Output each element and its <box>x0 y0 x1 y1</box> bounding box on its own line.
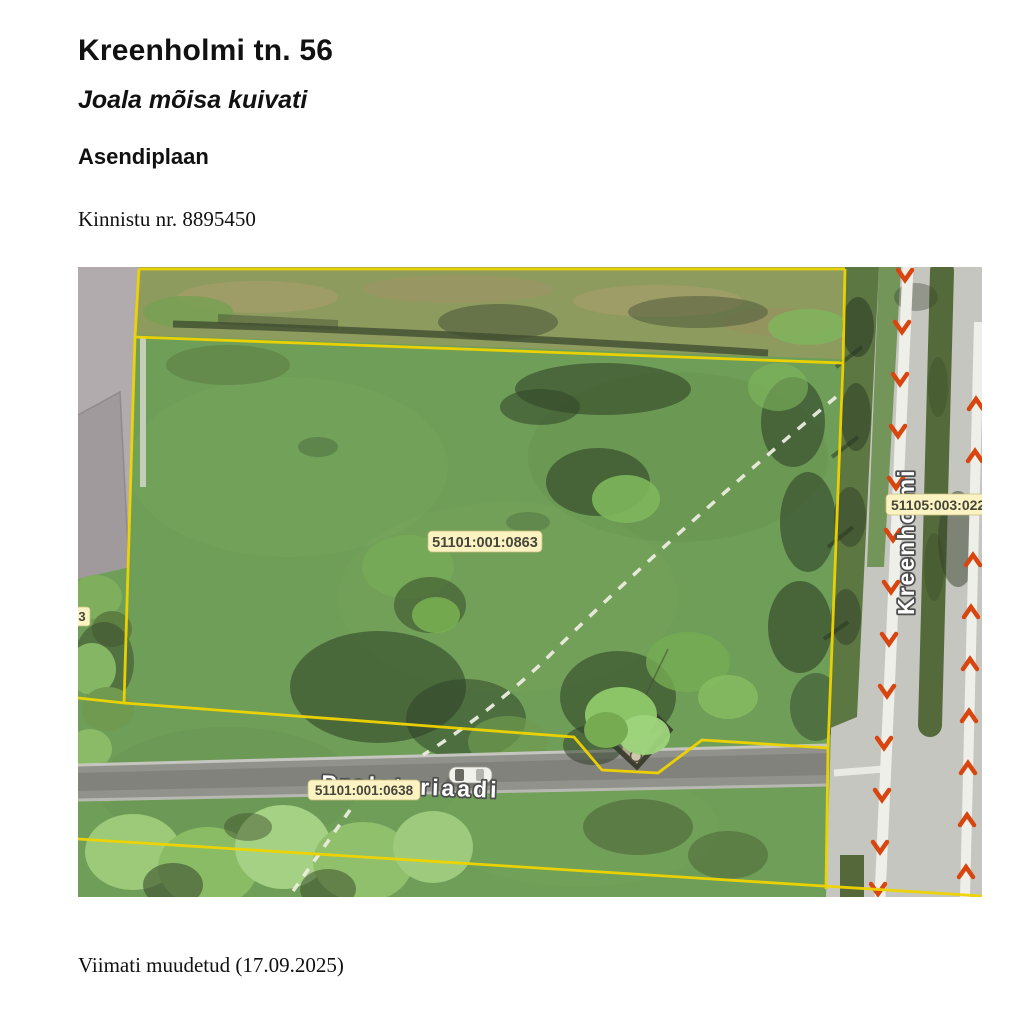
street-name-kreenholmi: Kreenholmi <box>893 468 919 615</box>
svg-text:51105:003:022: 51105:003:022 <box>891 497 982 513</box>
svg-text:51101:001:0638: 51101:001:0638 <box>315 783 414 798</box>
parcel-label: 51101:001:0863 <box>428 531 542 552</box>
site-plan-map: Proletariaadi Kreenholmi 51101:001:0863 … <box>78 267 982 897</box>
svg-text:3: 3 <box>78 609 85 624</box>
page-title: Kreenholmi tn. 56 <box>78 34 333 68</box>
west-edge-label: 3 <box>78 607 90 626</box>
svg-text:51101:001:0863: 51101:001:0863 <box>432 535 538 551</box>
path-along-building <box>140 337 146 487</box>
east-parcel-label: 51105:003:022 <box>886 494 982 515</box>
section-heading: Asendiplaan <box>78 144 209 170</box>
last-modified-note: Viimati muudetud (17.09.2025) <box>78 953 344 978</box>
registry-number: Kinnistu nr. 8895450 <box>78 207 256 232</box>
road-parcel-label: 51101:001:0638 <box>308 780 420 800</box>
south-median-strip <box>840 855 864 897</box>
document-page: Kreenholmi tn. 56 Joala mõisa kuivati As… <box>0 0 1024 1024</box>
page-subtitle: Joala mõisa kuivati <box>78 86 307 115</box>
aerial-map-svg: Proletariaadi Kreenholmi 51101:001:0863 … <box>78 267 982 897</box>
